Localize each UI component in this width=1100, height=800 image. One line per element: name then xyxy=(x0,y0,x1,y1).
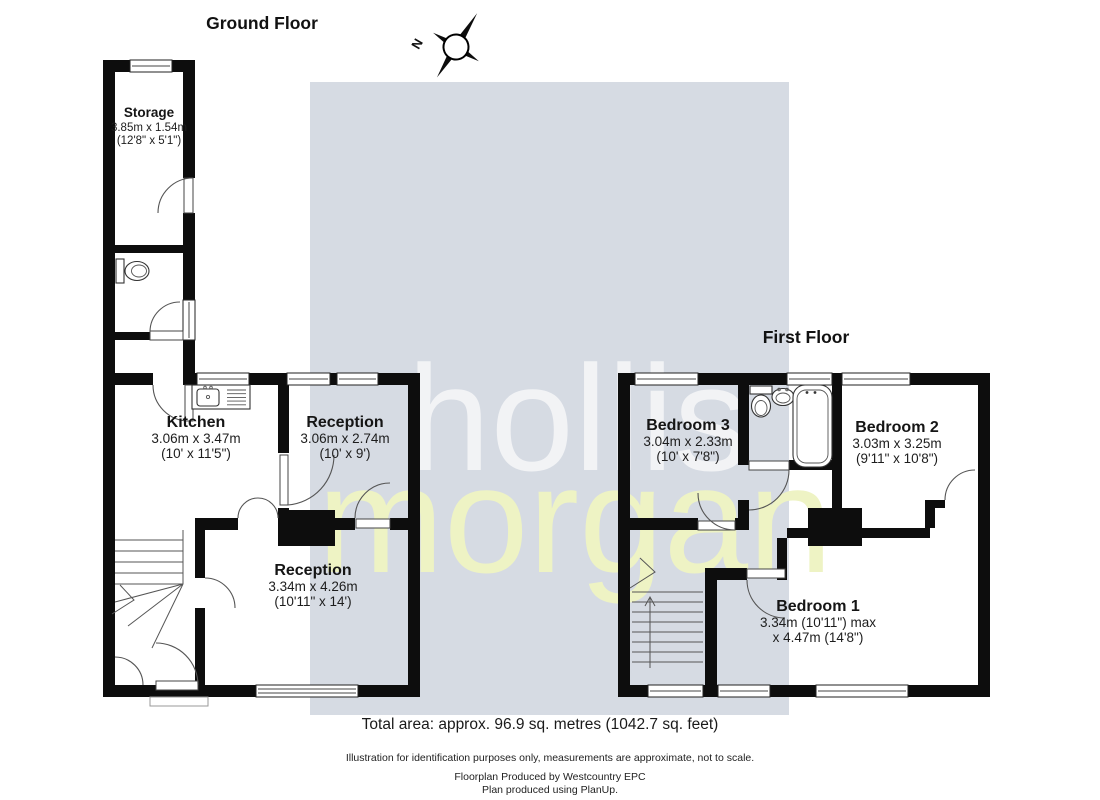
bathroom-toilet-icon xyxy=(750,386,772,417)
kitchen-window xyxy=(197,373,249,385)
room-label-bedroom1: Bedroom 1 3.34m (10'11") max x 4.47m (14… xyxy=(760,598,876,645)
room-label-reception-rear: Reception 3.34m x 4.26m (10'11" x 14') xyxy=(268,562,357,609)
bedroom1-metric: 3.34m (10'11") max xyxy=(760,615,876,630)
bedroom3-metric: 3.04m x 2.33m xyxy=(643,434,732,449)
bedroom2-name: Bedroom 2 xyxy=(855,419,939,436)
bathroom-basin-icon xyxy=(772,388,794,405)
bathtub-icon xyxy=(793,385,832,467)
bedroom2-metric: 3.03m x 3.25m xyxy=(852,436,941,451)
floorplan-canvas: hollis morgan Ground Floor First Floor N xyxy=(0,0,1100,800)
kitchen-sink-icon xyxy=(192,385,250,409)
bedroom1-window-2 xyxy=(816,685,908,697)
kitchen-name: Kitchen xyxy=(167,414,226,431)
bedroom1-window-1 xyxy=(718,685,770,697)
produced-by-text: Floorplan Produced by Westcountry EPC xyxy=(454,771,646,783)
reception-rear-name: Reception xyxy=(274,562,351,579)
bedroom1-imperial: x 4.47m (14'8") xyxy=(773,630,864,645)
corridor-side-window xyxy=(183,300,195,340)
kitchen-metric: 3.06m x 3.47m xyxy=(151,431,240,446)
landing-window xyxy=(648,685,703,697)
total-area-text: Total area: approx. 96.9 sq. metres (104… xyxy=(362,716,719,733)
reception-rear-imperial: (10'11" x 14') xyxy=(274,594,351,609)
bathroom-window xyxy=(787,373,832,385)
storage-imperial: (12'8" x 5'1") xyxy=(117,135,182,147)
disclaimer-text: Illustration for identification purposes… xyxy=(346,752,754,764)
kitchen-imperial: (10' x 11'5") xyxy=(161,446,231,461)
ground-chimney-breast xyxy=(278,510,335,546)
bedroom3-imperial: (10' x 7'8") xyxy=(656,449,719,464)
bedroom3-window xyxy=(635,373,698,385)
bedroom2-imperial: (9'11" x 10'8") xyxy=(856,451,938,466)
storage-name: Storage xyxy=(124,105,175,120)
porch-canopy xyxy=(150,697,208,706)
storage-metric: 3.85m x 1.54m xyxy=(111,122,187,134)
reception-rear-patio-window xyxy=(256,685,358,697)
reception-front-window-1 xyxy=(287,373,330,385)
first-floor-title: First Floor xyxy=(763,327,850,347)
ground-floor-title: Ground Floor xyxy=(206,13,318,33)
bedroom2-window xyxy=(842,373,910,385)
produced-with-text: Plan produced using PlanUp. xyxy=(482,784,618,796)
reception-rear-metric: 3.34m x 4.26m xyxy=(268,579,357,594)
room-label-bedroom2: Bedroom 2 3.03m x 3.25m (9'11" x 10'8") xyxy=(852,419,941,466)
bedroom3-name: Bedroom 3 xyxy=(646,417,730,434)
reception-front-imperial: (10' x 9') xyxy=(320,446,371,461)
reception-front-window-2 xyxy=(337,373,378,385)
first-chimney-breast xyxy=(808,508,862,546)
bedroom1-name: Bedroom 1 xyxy=(776,598,860,615)
reception-front-name: Reception xyxy=(306,414,383,431)
storage-window xyxy=(130,60,172,72)
room-label-bedroom3: Bedroom 3 3.04m x 2.33m (10' x 7'8") xyxy=(643,417,732,464)
reception-front-metric: 3.06m x 2.74m xyxy=(300,431,389,446)
